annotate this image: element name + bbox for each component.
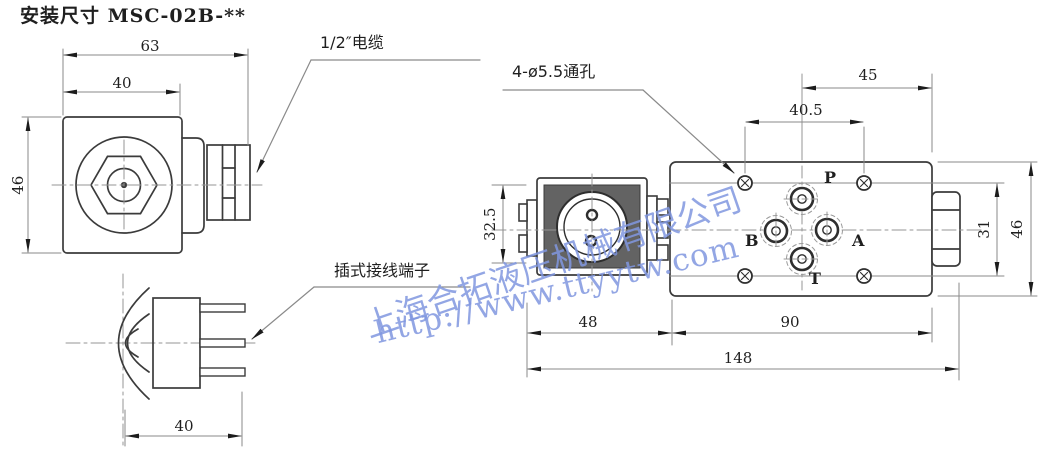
terminal-pin-top: [200, 304, 245, 312]
end-nut: [932, 192, 960, 266]
dim-top-total-length: 148: [708, 350, 768, 367]
mounting-hole: [857, 176, 871, 190]
port-label-t: T: [809, 270, 821, 288]
coil-end-view: [519, 178, 668, 275]
dim-top-hole-spacing-x: 40.5: [776, 102, 836, 119]
port-label-b: B: [745, 232, 759, 250]
terminal-pin-mid: [200, 339, 245, 347]
drawing-canvas: 安装尺寸 MSC-02B-** 63 40 46 1/2″电缆 40 插式接线端…: [0, 0, 1048, 451]
cable-gland: [207, 145, 250, 220]
mounting-hole: [857, 269, 871, 283]
dim-front-width-coil: 40: [92, 75, 152, 92]
dim-top-hole-spacing-y: 31: [976, 199, 993, 259]
hole-callout-label: 4-ø5.5通孔: [512, 63, 595, 81]
mounting-hole: [738, 269, 752, 283]
side-outline: [119, 288, 246, 399]
dim-top-coil-length: 48: [558, 314, 618, 331]
port-label-p: P: [824, 169, 836, 187]
dim-front-width-outer: 63: [120, 38, 180, 55]
mounting-hole: [738, 176, 752, 190]
terminal-leader: [252, 287, 470, 339]
terminal-pin-bottom: [200, 368, 245, 376]
dim-top-right-offset: 45: [838, 67, 898, 84]
coil-left-flange: [519, 200, 537, 256]
dim-front-height: 46: [10, 157, 27, 213]
top-view: [492, 74, 1037, 380]
dim-top-body-length: 90: [760, 314, 820, 331]
hole-leader: [503, 90, 734, 173]
port-label-a: A: [852, 232, 864, 250]
front-view: [22, 49, 480, 253]
dim-top-body-height: 46: [1009, 199, 1026, 259]
drawing-title: 安装尺寸 MSC-02B-**: [20, 6, 246, 27]
cable-label: 1/2″电缆: [320, 34, 384, 52]
dim-top-coil-height: 32.5: [482, 194, 499, 254]
dim-side-width: 40: [154, 418, 214, 435]
coil-right-flange: [647, 196, 668, 260]
pin-bottom: [586, 236, 596, 246]
cable-leader: [257, 60, 480, 172]
terminal-label: 插式接线端子: [334, 262, 430, 280]
side-view: [66, 274, 470, 449]
